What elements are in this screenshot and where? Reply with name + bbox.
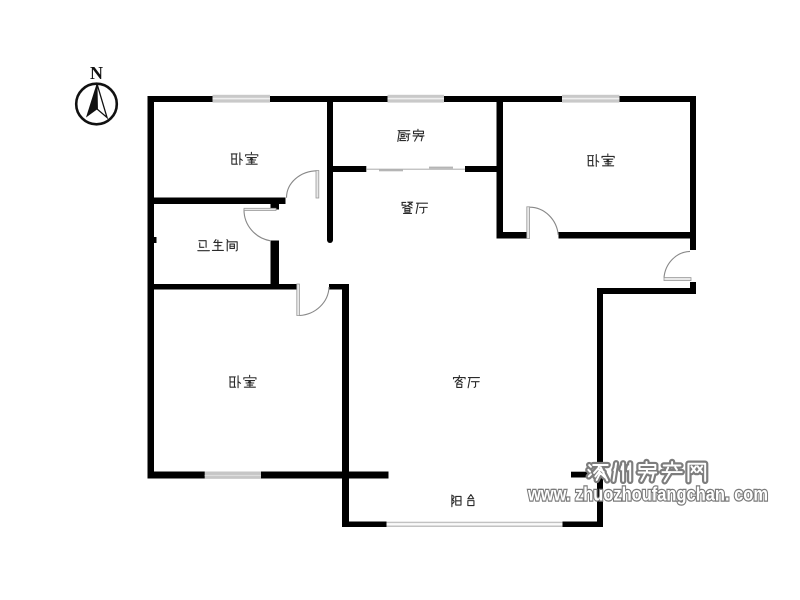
svg-text:www. zhuozhoufangchan. com: www. zhuozhoufangchan. com [527, 485, 768, 506]
svg-text:N: N [90, 63, 103, 83]
